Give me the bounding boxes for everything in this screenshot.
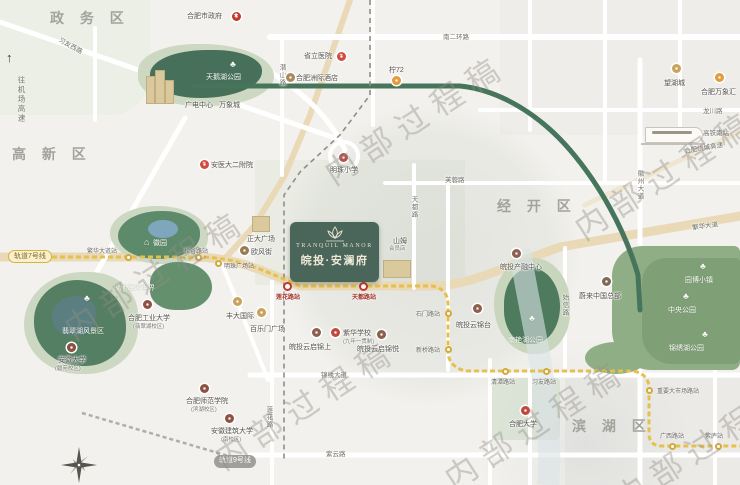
road-label: 莲花路 xyxy=(263,406,273,429)
poi-label: 柠72 xyxy=(389,65,404,75)
poi-badge xyxy=(512,249,521,258)
tv-center-towers xyxy=(155,70,165,104)
road-label: 徽州大道 xyxy=(634,170,644,200)
poi-badge xyxy=(521,406,530,415)
metro-station-label: 广西路站 xyxy=(660,431,684,440)
road-label: 锦绣大道 xyxy=(321,369,347,379)
metro-station-label: 松谷路站 xyxy=(184,246,208,255)
park-label: 极地海洋世界 xyxy=(113,283,155,293)
poi-label: 明珠小学 xyxy=(330,165,358,175)
map-canvas: TRANQUIL MANOR 皖投·安澜府 轨道7号线 轨道9号线 ↑ 往机场高… xyxy=(0,0,740,485)
poi-badge xyxy=(339,153,348,162)
project-logo-card: TRANQUIL MANOR 皖投·安澜府 xyxy=(290,222,379,282)
metro-station-dot xyxy=(359,282,368,291)
airport-highway-label: 往机场高速 xyxy=(16,76,27,124)
metro-station-label: 紫庐站 xyxy=(705,431,723,440)
metro-station-label: 习友路站 xyxy=(532,377,556,386)
poi-badge xyxy=(377,330,386,339)
metro-line-9-badge: 轨道9号线 xyxy=(214,455,256,468)
zhengda-plaza-building xyxy=(252,216,270,232)
poi-badge xyxy=(67,343,76,352)
poi-badge xyxy=(312,328,321,337)
poi-label: 万象城 xyxy=(219,100,240,110)
metro-station-label: 繁华大道站 xyxy=(87,246,117,255)
poi-badge xyxy=(200,384,209,393)
poi-sublabel: 会员店 xyxy=(389,244,406,252)
project-name-cn: 皖投·安澜府 xyxy=(301,252,369,268)
metro-station-label: 新桥路站 xyxy=(416,345,440,354)
airport-direction-arrow: ↑ xyxy=(6,50,13,65)
metro-station-label: 莲花路站 xyxy=(276,292,300,301)
district-label: 政 务 区 xyxy=(50,8,130,28)
metro-station-label: 重要大市场路站 xyxy=(657,386,699,395)
poi-label: 百乐门广场 xyxy=(250,324,285,334)
poi-badge xyxy=(715,73,724,82)
project-name-en: TRANQUIL MANOR xyxy=(296,243,373,249)
lotus-emblem xyxy=(320,226,350,242)
park-label: 徽园 xyxy=(153,238,167,248)
metro-station-dot xyxy=(502,368,509,375)
poi-label: 正大广场 xyxy=(247,234,275,244)
tree-icon: ♣ xyxy=(702,330,708,339)
poi-badge xyxy=(257,308,266,317)
tv-center-towers xyxy=(146,76,155,104)
poi-label: 省立医院 xyxy=(304,51,332,61)
district-label: 高 新 区 xyxy=(12,144,92,164)
metro-station-dot xyxy=(125,254,132,261)
poi-badge: ★ xyxy=(232,12,241,21)
poi-badge: + xyxy=(337,52,346,61)
poi-sublabel: (滨湖校区) xyxy=(191,405,217,413)
tree-icon: ♣ xyxy=(700,262,706,271)
poi-label: 皖投云锦台 xyxy=(456,320,491,330)
road-label: 紫云路 xyxy=(326,448,346,458)
poi-label: 广电中心 xyxy=(185,100,213,110)
poi-badge xyxy=(331,328,340,337)
tree-icon: ♣ xyxy=(84,294,90,303)
metro-station-dot xyxy=(715,443,722,450)
poi-badge xyxy=(233,297,242,306)
road-label: 龙川路 xyxy=(703,105,723,115)
metro-station-dot xyxy=(445,346,452,353)
poi-label: 欧风街 xyxy=(251,247,272,257)
poi-label: 合肥大学 xyxy=(509,419,537,429)
poi-badge xyxy=(286,73,295,82)
sams-club-building xyxy=(383,260,411,278)
metro-station-dot xyxy=(445,310,452,317)
road-label: 南二环路 xyxy=(443,31,469,41)
tree-icon: ♣ xyxy=(230,60,236,69)
poi-badge xyxy=(672,64,681,73)
metro-station-label: 明珠广场站 xyxy=(224,261,254,270)
poi-sublabel: (南校区) xyxy=(221,435,241,443)
poi-sublabel: (翡翠湖校区) xyxy=(133,322,164,330)
tree-icon: ♣ xyxy=(529,314,535,323)
poi-label: 合肥市政府 xyxy=(187,11,222,21)
poi-badge xyxy=(392,76,401,85)
metro-station-dot xyxy=(646,387,653,394)
poi-label: 皖投云启锦上 xyxy=(289,342,331,352)
poi-badge xyxy=(143,300,152,309)
poi-badge xyxy=(602,277,611,286)
poi-label: 望湖城 xyxy=(664,78,685,88)
road-label: 芙蓉路 xyxy=(445,174,465,184)
metro-line-7-badge: 轨道7号线 xyxy=(8,250,52,263)
poi-badge xyxy=(240,246,249,255)
road-label: 高铁南站 xyxy=(703,127,729,137)
poi-label: 合肥万象汇 xyxy=(701,87,736,97)
poi-badge: + xyxy=(200,160,209,169)
road-label: 天都路 xyxy=(408,196,418,219)
metro-station-dot xyxy=(669,443,676,450)
metro-station-label: 天都路站 xyxy=(352,292,376,301)
high-speed-train-icon xyxy=(645,127,703,143)
park-label: 翡翠湖风景区 xyxy=(62,326,104,336)
tree-icon: ♣ xyxy=(683,292,689,301)
poi-label: 皖投产融中心 xyxy=(500,262,542,272)
metro-station-label: 清潭路站 xyxy=(491,377,515,386)
metro-station-dot xyxy=(215,260,222,267)
compass-rose xyxy=(60,446,98,484)
poi-label: 安医大二附院 xyxy=(211,160,253,170)
park-label: 天鹅湖公园 xyxy=(206,72,241,82)
park-label: 园博小镇 xyxy=(685,275,713,285)
poi-sublabel: (磬苑校区) xyxy=(55,364,81,372)
poi-label: 蔚来中国总部 xyxy=(579,291,621,301)
metro-station-dot xyxy=(543,368,550,375)
district-label: 经 开 区 xyxy=(497,196,577,216)
park-label: 中央公园 xyxy=(668,305,696,315)
park-label: 锦绣湖公园 xyxy=(669,343,704,353)
park-label: 南艳湖公园 xyxy=(508,335,543,345)
road-label: 始信路 xyxy=(559,294,569,317)
tv-center-towers xyxy=(165,80,174,104)
poi-badge xyxy=(225,414,234,423)
metro-station-label: 石门路站 xyxy=(416,309,440,318)
poi-label: 丰大国际 xyxy=(226,311,254,321)
poi-label: 皖投云启锦悦 xyxy=(357,344,399,354)
district-label: 滨 湖 区 xyxy=(572,416,652,436)
metro-station-dot xyxy=(283,282,292,291)
poi-badge xyxy=(473,304,482,313)
house-icon: ⌂ xyxy=(144,238,149,247)
poi-label: 合肥洲际酒店 xyxy=(296,73,338,83)
road-label: 潜山路 xyxy=(276,64,286,87)
